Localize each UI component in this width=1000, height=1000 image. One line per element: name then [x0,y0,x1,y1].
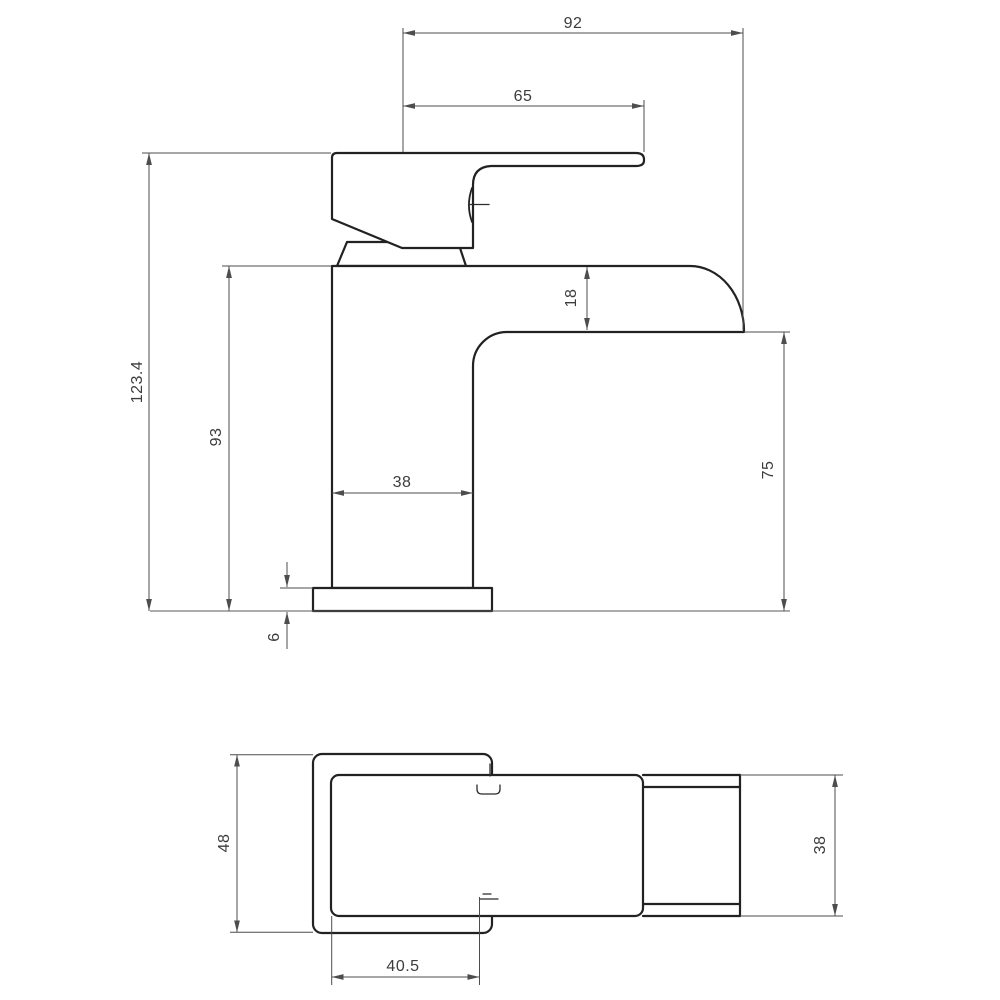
dim-label-body-width: 38 [393,474,412,491]
side-elevation-view: 92 65 123.4 93 38 18 75 [129,15,790,649]
dim-label-base-plate-thickness: 6 [266,632,283,641]
base-plate-outline [313,588,492,611]
technical-drawing-sheet: 92 65 123.4 93 38 18 75 [0,0,1000,1000]
dim-label-body-height: 93 [208,428,225,447]
handle-outline [332,153,644,248]
plan-view: 48 38 40.5 [216,754,843,985]
dim-label-base-plate-depth: 48 [216,834,233,853]
dimension-48: 48 [216,755,313,933]
plan-body-outline [331,775,643,916]
dimension-6: 6 [266,562,313,649]
dimension-38-spout: 38 [740,775,843,916]
dim-label-handle-reach: 65 [514,88,533,105]
dimension-123-4: 123.4 [129,153,331,611]
body-spout-outline [332,266,744,588]
dim-label-inlet-offset: 40.5 [386,958,419,975]
dimension-75: 75 [744,332,790,611]
plan-spout-lines [643,775,740,916]
dimension-65: 65 [403,88,644,152]
dim-label-spout-clearance: 75 [760,461,777,480]
dim-label-spout-width: 38 [812,836,829,855]
dim-label-spout-thickness: 18 [563,289,580,308]
dim-label-overall-height: 123.4 [129,361,146,404]
dimension-93: 93 [208,266,331,611]
dim-label-spout-reach: 92 [564,15,583,32]
